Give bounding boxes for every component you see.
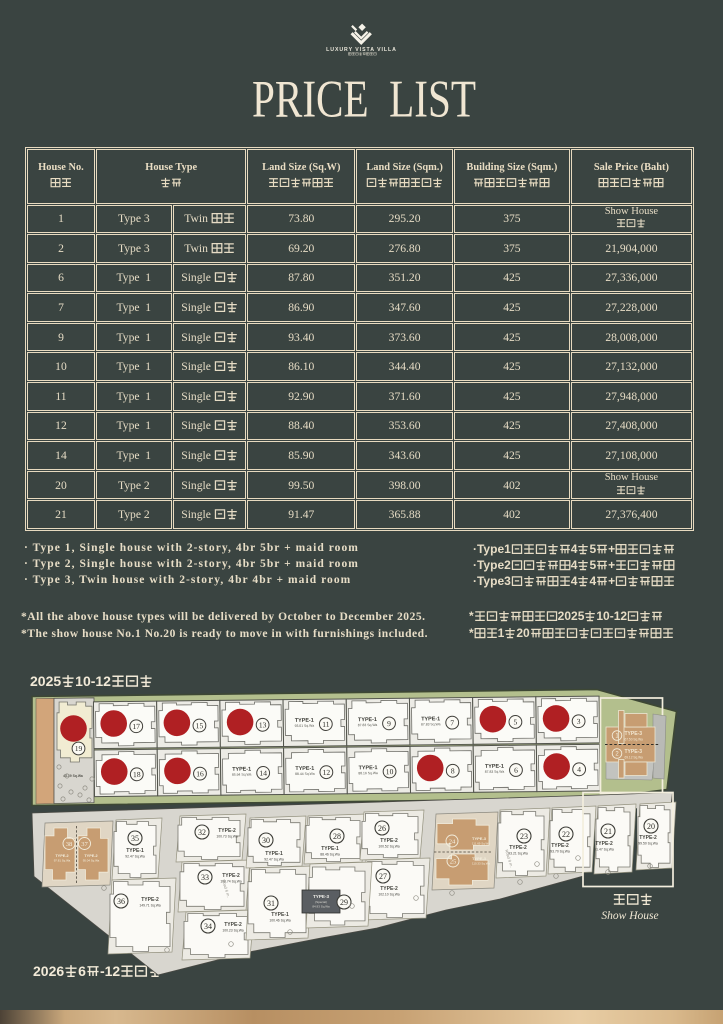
svg-text:15: 15	[196, 721, 204, 730]
svg-text:149.71 Sq.Wa: 149.71 Sq.Wa	[139, 904, 160, 908]
svg-text:26: 26	[378, 824, 386, 833]
svg-text:43.39 Sq.Wa: 43.39 Sq.Wa	[63, 774, 83, 778]
svg-text:38: 38	[66, 841, 73, 848]
svg-text:8: 8	[451, 766, 455, 775]
svg-text:36: 36	[117, 897, 125, 906]
svg-text:28: 28	[333, 832, 341, 841]
svg-text:67.50 Sq.Wa: 67.50 Sq.Wa	[625, 738, 644, 742]
svg-text:92.47 Sq.Wa: 92.47 Sq.Wa	[125, 855, 145, 859]
svg-text:88.44 Sq.Wa: 88.44 Sq.Wa	[295, 772, 315, 776]
svg-text:TYPE-2: TYPE-2	[224, 922, 242, 928]
svg-text:TYPE-1: TYPE-1	[321, 846, 339, 852]
svg-text:TYPE-1: TYPE-1	[265, 851, 283, 857]
svg-text:6: 6	[514, 766, 518, 775]
svg-text:22: 22	[562, 830, 570, 839]
svg-text:100.46 Sq.Wa: 100.46 Sq.Wa	[269, 919, 290, 923]
svg-text:TYPE-2: TYPE-2	[639, 835, 657, 841]
svg-text:92.47 Sq.Wa: 92.47 Sq.Wa	[264, 858, 284, 862]
svg-text:13: 13	[259, 720, 267, 729]
svg-text:32: 32	[198, 828, 206, 837]
svg-text:7: 7	[450, 718, 454, 727]
svg-text:29: 29	[340, 898, 348, 907]
svg-text:TYPE-1: TYPE-1	[271, 912, 289, 918]
svg-text:87.83 Sq.Wa: 87.83 Sq.Wa	[358, 723, 378, 727]
svg-text:87.83 Sq.Wa: 87.83 Sq.Wa	[485, 770, 505, 774]
svg-text:(Special): (Special)	[315, 900, 327, 904]
svg-text:16: 16	[196, 769, 204, 778]
svg-text:69.12 Sq.Wa: 69.12 Sq.Wa	[625, 756, 644, 760]
svg-text:84.93 Sq.Wa: 84.93 Sq.Wa	[312, 905, 330, 909]
svg-text:TYPE-2: TYPE-2	[141, 897, 159, 903]
svg-text:30: 30	[262, 836, 270, 845]
svg-text:37: 37	[81, 841, 88, 848]
svg-text:TYPE-1: TYPE-1	[126, 848, 144, 854]
svg-text:33: 33	[201, 873, 209, 882]
svg-text:102.10 Sq.Wa: 102.10 Sq.Wa	[378, 893, 399, 897]
svg-text:TYPE-2: TYPE-2	[551, 843, 569, 849]
svg-text:TYPE-3: TYPE-3	[472, 836, 487, 841]
svg-text:TYPE-2: TYPE-2	[380, 838, 398, 844]
svg-text:93.01 Sq.Wa: 93.01 Sq.Wa	[295, 724, 315, 728]
svg-text:88.46 Sq.Wa: 88.46 Sq.Wa	[320, 853, 340, 857]
svg-text:14: 14	[259, 769, 267, 778]
svg-text:Show House: Show House	[601, 910, 658, 922]
svg-text:25: 25	[450, 859, 457, 866]
svg-text:TYPE-2: TYPE-2	[84, 854, 97, 858]
svg-text:23: 23	[520, 832, 528, 841]
svg-text:TYPE-3: TYPE-3	[472, 856, 487, 861]
svg-text:21: 21	[604, 827, 612, 836]
svg-text:TYPE-3: TYPE-3	[625, 731, 643, 737]
svg-text:99.50 Sq.Wa: 99.50 Sq.Wa	[638, 842, 658, 846]
svg-text:TYPE-3: TYPE-3	[313, 894, 330, 899]
svg-text:TYPE-3: TYPE-3	[625, 749, 643, 755]
svg-text:97.81 Sq.Wa: 97.81 Sq.Wa	[54, 859, 71, 863]
svg-text:111.69 Sq.Wa: 111.69 Sq.Wa	[472, 842, 490, 846]
svg-text:27: 27	[379, 872, 387, 881]
svg-text:93.70 Sq.Wa: 93.70 Sq.Wa	[550, 850, 570, 854]
svg-text:100.23 Sq.Wa: 100.23 Sq.Wa	[222, 929, 243, 933]
svg-text:31: 31	[267, 899, 275, 908]
svg-text:87.83 Sq.Wa: 87.83 Sq.Wa	[421, 722, 441, 726]
svg-text:17: 17	[132, 722, 140, 731]
svg-text:95.04 Sq.Wa: 95.04 Sq.Wa	[83, 859, 100, 863]
svg-text:10: 10	[386, 767, 394, 776]
svg-text:TYPE-2: TYPE-2	[595, 841, 613, 847]
svg-text:100.73 Sq.Wa: 100.73 Sq.Wa	[216, 835, 237, 839]
svg-text:5: 5	[513, 718, 517, 727]
svg-text:100.52 Sq.Wa: 100.52 Sq.Wa	[378, 845, 399, 849]
svg-text:11: 11	[322, 720, 330, 729]
svg-text:85.94 Sq.Wa: 85.94 Sq.Wa	[232, 773, 252, 777]
svg-text:12: 12	[323, 768, 331, 777]
svg-text:110.33 Sq.Wa: 110.33 Sq.Wa	[472, 862, 490, 866]
svg-text:24: 24	[449, 839, 456, 846]
svg-text:18: 18	[133, 770, 141, 779]
svg-text:TYPE-2: TYPE-2	[55, 854, 68, 858]
svg-text:TYPE-2: TYPE-2	[380, 886, 398, 892]
svg-text:TYPE-2: TYPE-2	[509, 845, 527, 851]
svg-text:9: 9	[387, 719, 391, 728]
svg-text:TYPE-2: TYPE-2	[218, 828, 236, 834]
svg-text:35: 35	[131, 834, 139, 843]
svg-text:91.47 Sq.Wa: 91.47 Sq.Wa	[594, 848, 614, 852]
svg-text:88.16 Sq.Wa: 88.16 Sq.Wa	[358, 771, 378, 775]
svg-text:3: 3	[577, 717, 581, 726]
svg-text:19: 19	[75, 744, 83, 753]
svg-text:34: 34	[204, 922, 212, 931]
svg-text:4: 4	[577, 765, 581, 774]
svg-text:20: 20	[647, 822, 655, 831]
